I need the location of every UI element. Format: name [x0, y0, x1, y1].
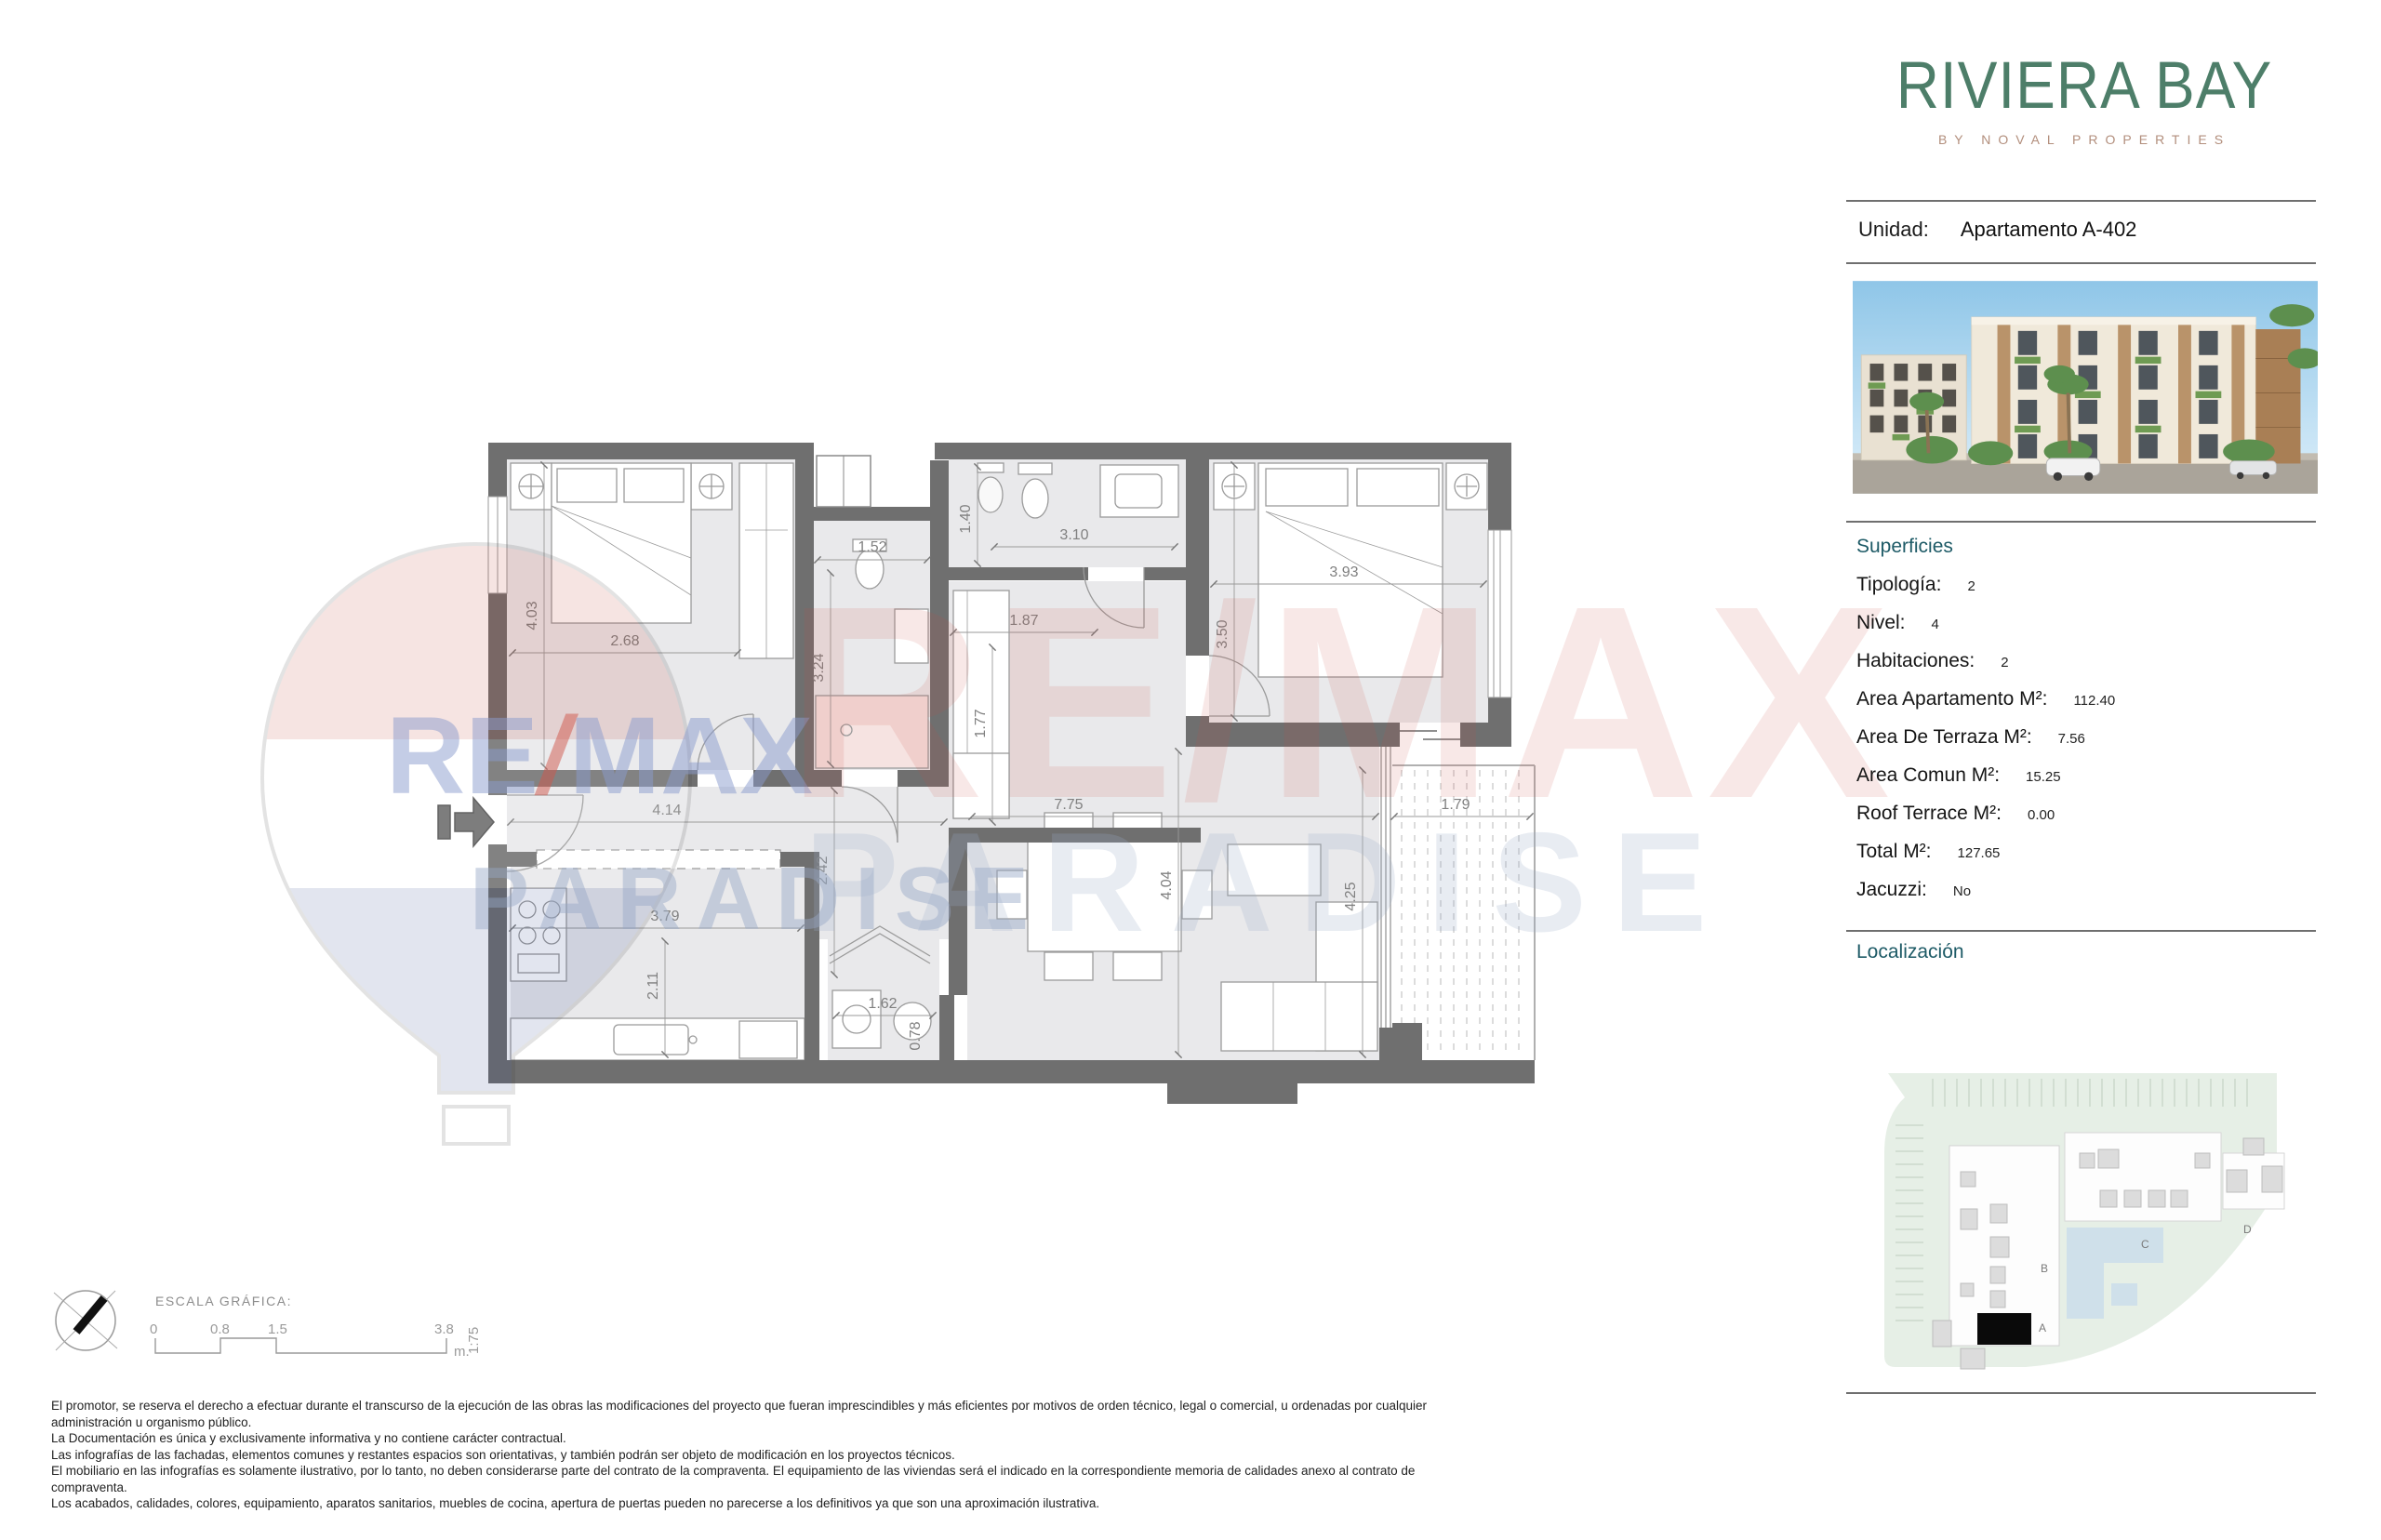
dim-label: 4.25: [1343, 882, 1359, 910]
disclaimer: El promotor, se reserva el derecho a efe…: [51, 1398, 1800, 1512]
dim-label: 4.03: [525, 601, 540, 630]
entry-arrow-icon: [438, 798, 494, 846]
dim-label: 0.78: [908, 1021, 924, 1050]
dim-label: 3.93: [1329, 564, 1358, 580]
building-rendering: [1853, 272, 2318, 502]
map-label-d: D: [2243, 1223, 2252, 1236]
dim-label: 3.79: [650, 909, 679, 924]
dim-label: 2.11: [645, 972, 661, 1000]
divider: [1846, 262, 2316, 264]
map-label-c: C: [2141, 1238, 2149, 1251]
scale-ratio: 1:75: [466, 1327, 482, 1354]
plan-sheet: 4.03 2.68 1.52 3.24 1.40 3.10 1.87 1.77 …: [0, 0, 2381, 1540]
dim-label: 1.77: [973, 709, 989, 737]
floor-plan-drawing: 4.03 2.68 1.52 3.24 1.40 3.10 1.87 1.77 …: [432, 418, 1586, 1111]
scale-bar-area: ESCALA GRÁFICA: 0 0.8 1.5 3.8 m. 1:75: [37, 1281, 558, 1386]
floor-plan: 4.03 2.68 1.52 3.24 1.40 3.10 1.87 1.77 …: [432, 418, 1586, 1111]
unit-row: Unidad: Apartamento A-402: [1858, 218, 2136, 242]
dim-label: 4.04: [1159, 870, 1175, 899]
disclaimer-line: compraventa.: [51, 1480, 1800, 1496]
dim-label: 3.50: [1215, 619, 1230, 648]
unit-a-highlight: [1977, 1313, 2031, 1345]
disclaimer-line: Las infografías de las fachadas, element…: [51, 1447, 1800, 1464]
divider: [1846, 930, 2316, 932]
dim-label: 1.87: [1009, 613, 1038, 629]
superficies-heading: Superficies: [1856, 536, 2316, 558]
disclaimer-line: La Documentación es única y exclusivamen…: [51, 1430, 1800, 1447]
superficies-row: Jacuzzi: No: [1856, 879, 2316, 901]
scale-mark: 0.8: [210, 1321, 230, 1337]
superficies-row: Area Apartamento M²: 112.40: [1856, 688, 2316, 710]
localizacion-heading: Localización: [1856, 941, 1964, 963]
superficies-row: Area Comun M²: 15.25: [1856, 764, 2316, 787]
divider: [1846, 1392, 2316, 1394]
superficies-row: Total M²: 127.65: [1856, 841, 2316, 863]
brand-title: RIVIERA BAY: [1856, 46, 2313, 124]
dim-label: 3.24: [811, 653, 827, 682]
dim-label: 1.79: [1441, 797, 1470, 813]
disclaimer-line: Los acabados, calidades, colores, equipa…: [51, 1495, 1800, 1512]
dim-label: 1.52: [858, 539, 886, 555]
map-label-a: A: [2039, 1321, 2046, 1334]
unit-label: Unidad:: [1858, 218, 1929, 242]
brand-tagline: BY NOVAL PROPERTIES: [1856, 132, 2313, 147]
disclaimer-line: El promotor, se reserva el derecho a efe…: [51, 1398, 1800, 1414]
scale-bar: [155, 1338, 446, 1353]
scale-mark: 3.8: [434, 1321, 454, 1337]
brand-logo: RIVIERA BAY BY NOVAL PROPERTIES: [1856, 46, 2313, 147]
superficies-row: Roof Terrace M²: 0.00: [1856, 803, 2316, 825]
compass-icon: [54, 1291, 117, 1350]
dim-label: 4.14: [652, 803, 681, 818]
dim-label: 3.10: [1059, 527, 1088, 543]
scale-title: ESCALA GRÁFICA:: [155, 1294, 292, 1308]
divider: [1846, 200, 2316, 202]
disclaimer-line: administración u organismo público.: [51, 1414, 1800, 1431]
map-label-b: B: [2041, 1262, 2048, 1275]
dim-label: 7.75: [1054, 797, 1083, 813]
superficies-section: Superficies Tipología: 2 Nivel: 4 Habita…: [1856, 536, 2316, 901]
superficies-row: Area De Terraza M²: 7.56: [1856, 726, 2316, 749]
scale-mark: 0: [150, 1321, 157, 1337]
scale-mark: 1.5: [268, 1321, 287, 1337]
site-map: A B C D: [1868, 1060, 2295, 1387]
dim-label: 1.62: [868, 996, 897, 1012]
superficies-row: Habitaciones: 2: [1856, 650, 2316, 672]
dim-label: 2.68: [610, 633, 639, 649]
dim-label: 2.42: [815, 856, 831, 884]
divider: [1846, 521, 2316, 523]
disclaimer-line: El mobiliario en las infografías es sola…: [51, 1463, 1800, 1480]
unit-value: Apartamento A-402: [1961, 218, 2137, 242]
superficies-row: Tipología: 2: [1856, 574, 2316, 596]
superficies-row: Nivel: 4: [1856, 612, 2316, 634]
dim-label: 1.40: [958, 504, 974, 533]
